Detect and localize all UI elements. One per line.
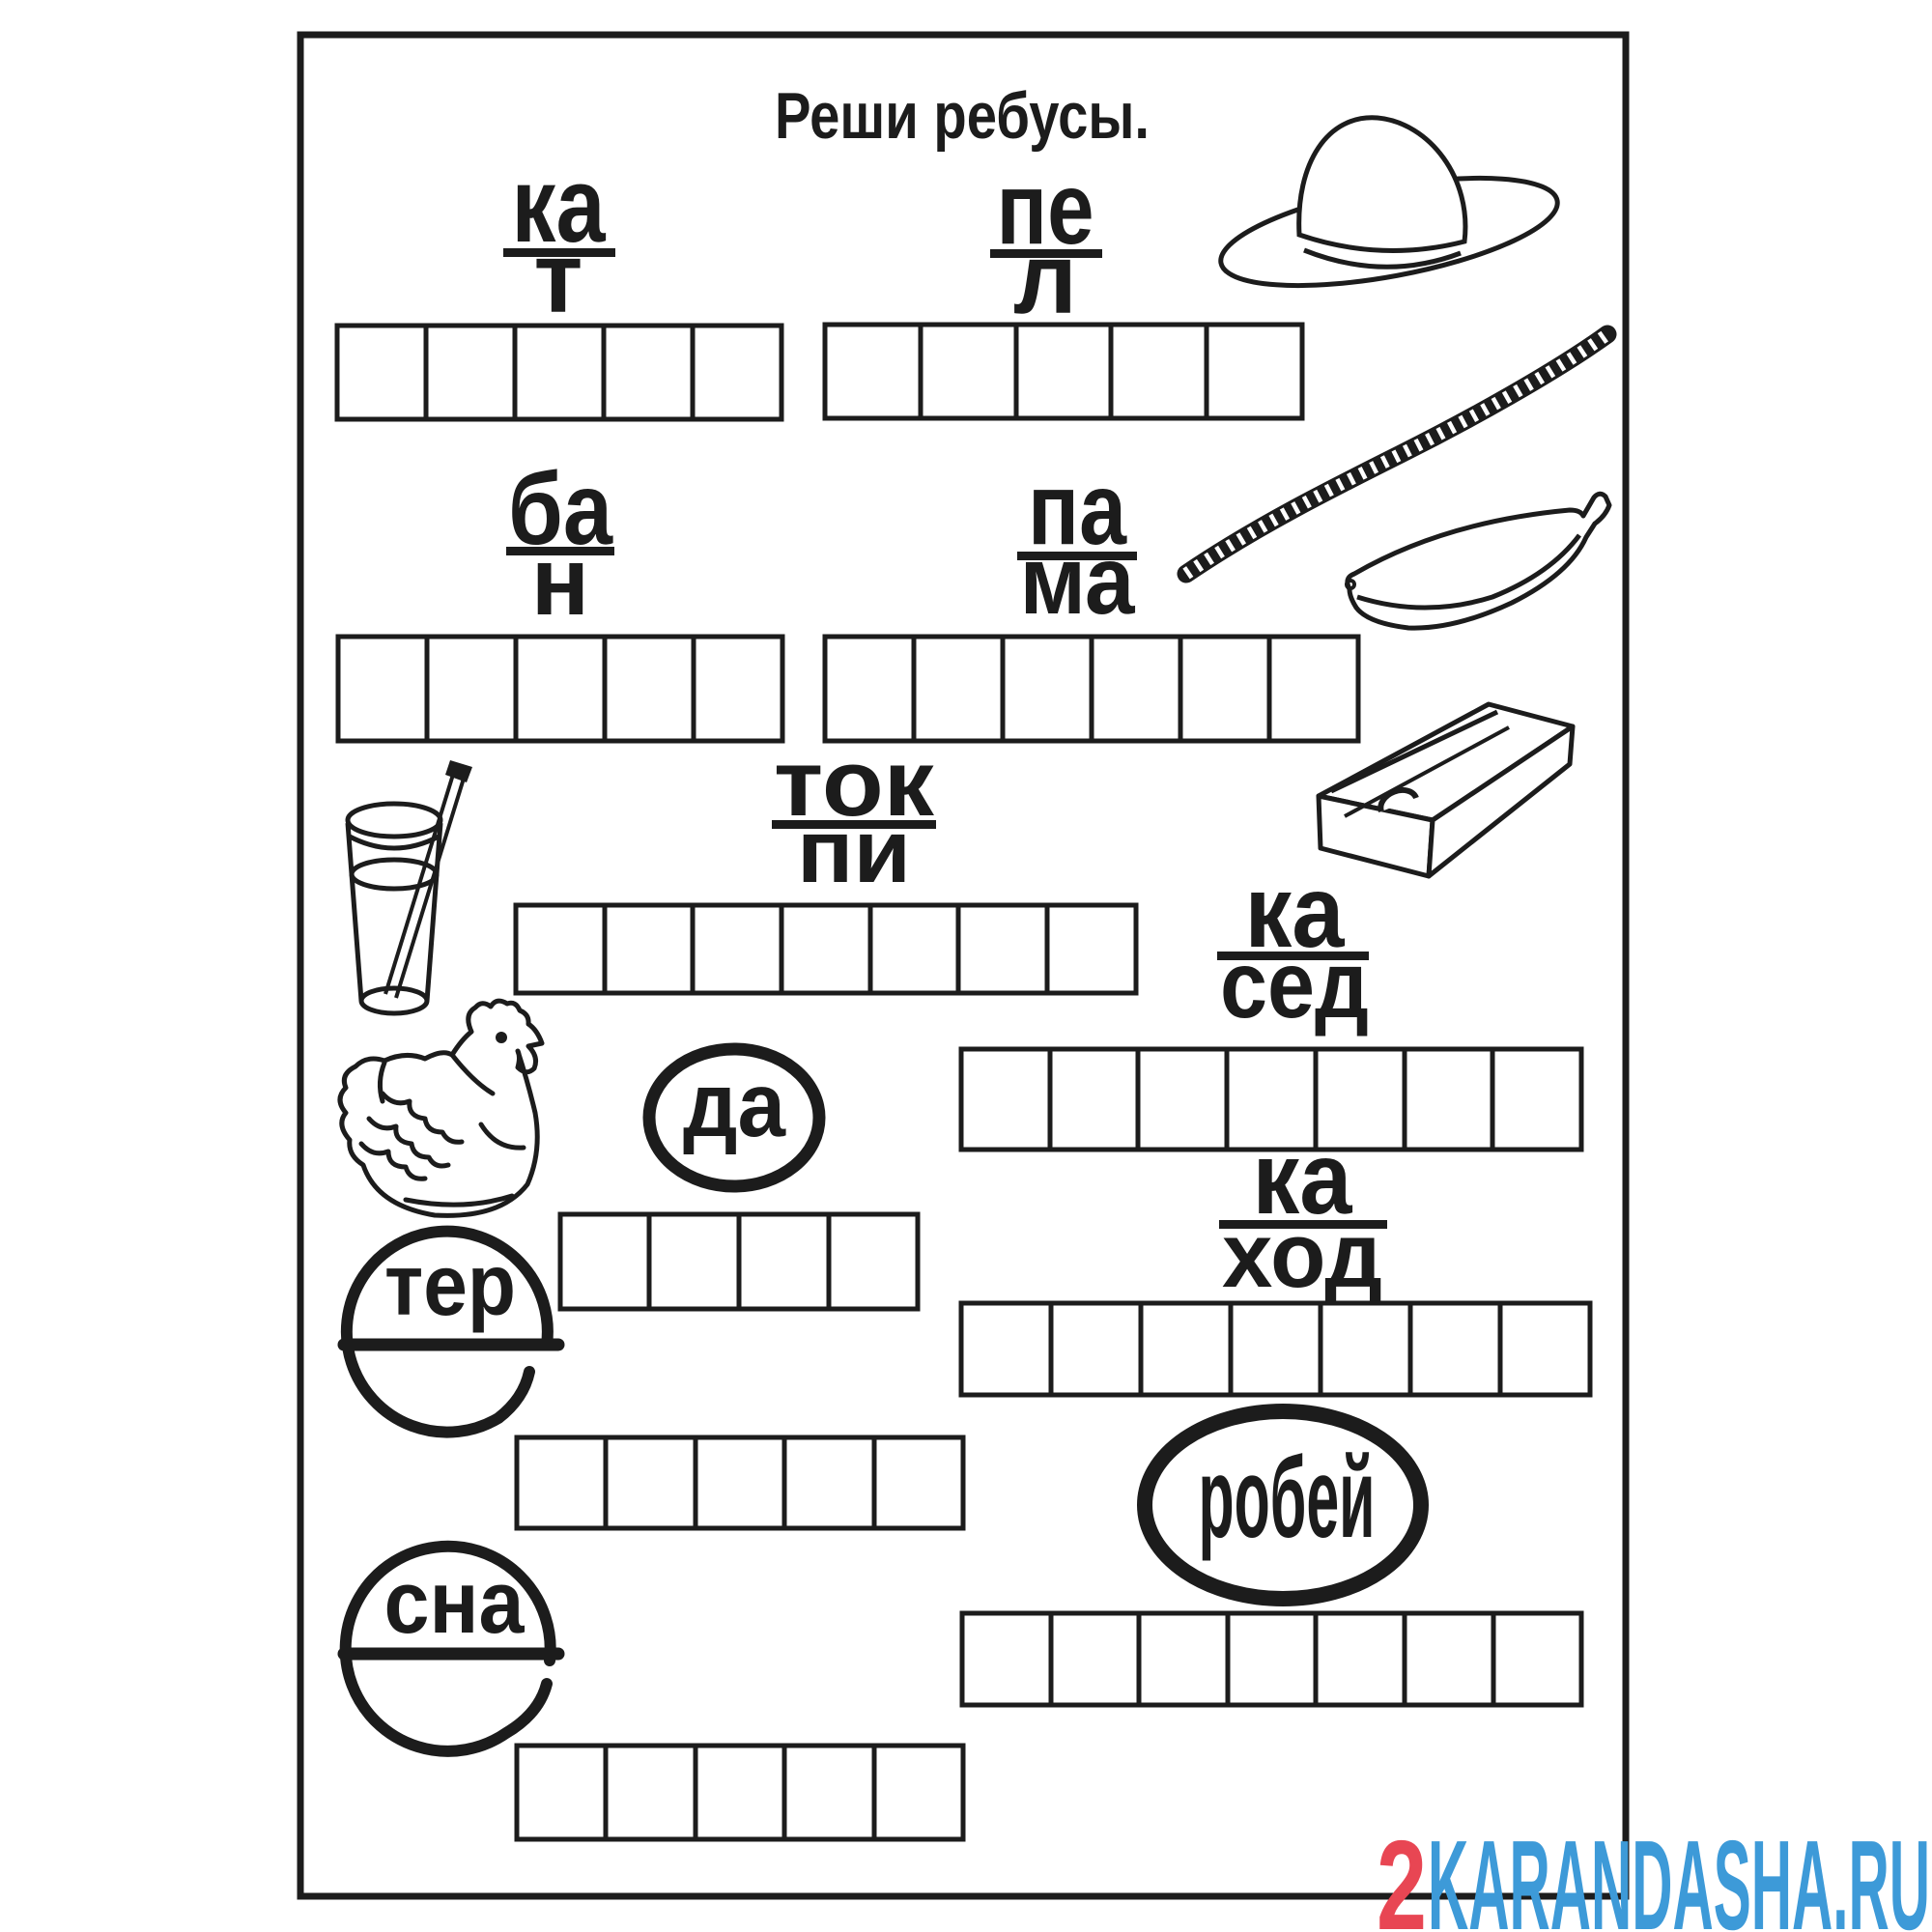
svg-text:Реши ребусы.: Реши ребусы. <box>775 79 1150 153</box>
svg-text:KARANDASHA.RU: KARANDASHA.RU <box>1428 1814 1930 1932</box>
svg-text:т: т <box>534 222 583 334</box>
svg-text:н: н <box>531 527 589 636</box>
svg-text:пи: пи <box>797 801 911 901</box>
svg-text:да: да <box>683 1054 786 1156</box>
svg-text:ма: ма <box>1020 526 1136 635</box>
svg-text:2: 2 <box>1377 1814 1427 1932</box>
svg-text:сна: сна <box>384 1553 526 1652</box>
svg-text:ход: ход <box>1222 1204 1382 1307</box>
svg-text:робей: робей <box>1199 1435 1376 1562</box>
svg-text:тер: тер <box>384 1237 516 1334</box>
svg-text:сед: сед <box>1220 931 1369 1037</box>
svg-text:л: л <box>1013 223 1077 335</box>
